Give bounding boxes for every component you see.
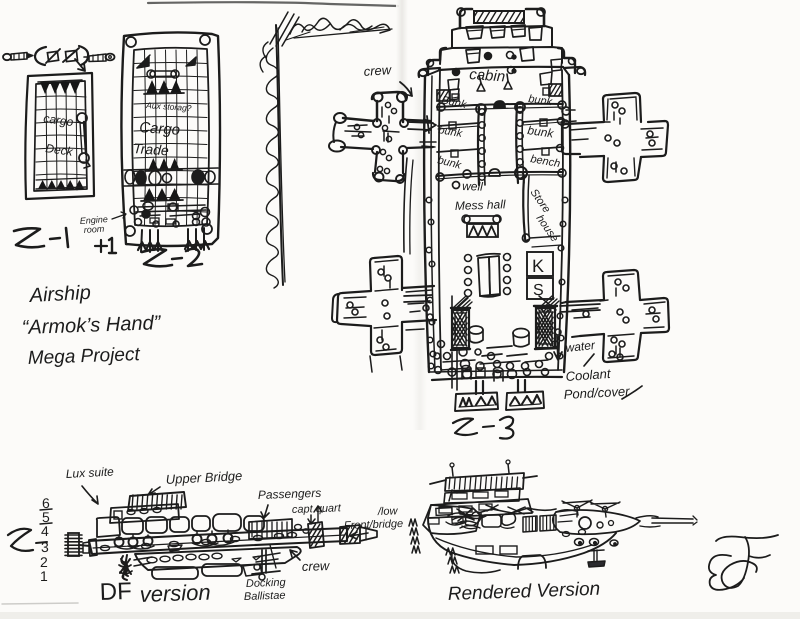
svg-text:Ballistae: Ballistae	[244, 590, 286, 603]
svg-text:crew: crew	[363, 62, 393, 79]
svg-text:Mega Project: Mega Project	[27, 344, 140, 369]
svg-text:Lux suite: Lux suite	[65, 464, 114, 481]
svg-text:Trade: Trade	[133, 140, 170, 158]
svg-text:Cargo: Cargo	[139, 119, 181, 139]
svg-text:crew: crew	[302, 558, 332, 574]
svg-text:room: room	[83, 224, 105, 235]
svg-text:DF: DF	[99, 578, 132, 606]
svg-text:K: K	[532, 256, 544, 276]
svg-text:well: well	[462, 179, 483, 194]
svg-text:S: S	[533, 282, 544, 299]
svg-text:Front/bridge: Front/bridge	[344, 518, 404, 532]
svg-text:version: version	[139, 580, 211, 607]
svg-text:cabin: cabin	[469, 66, 506, 85]
svg-text:Passengers: Passengers	[258, 486, 322, 502]
svg-text:/low: /low	[377, 505, 399, 518]
svg-text:1: 1	[40, 568, 48, 584]
svg-text:capt quart: capt quart	[292, 502, 342, 516]
svg-text:Airship: Airship	[28, 282, 91, 307]
svg-text:Mess hall: Mess hall	[455, 197, 506, 213]
svg-text:Docking: Docking	[246, 577, 287, 590]
svg-text:4: 4	[41, 523, 49, 539]
